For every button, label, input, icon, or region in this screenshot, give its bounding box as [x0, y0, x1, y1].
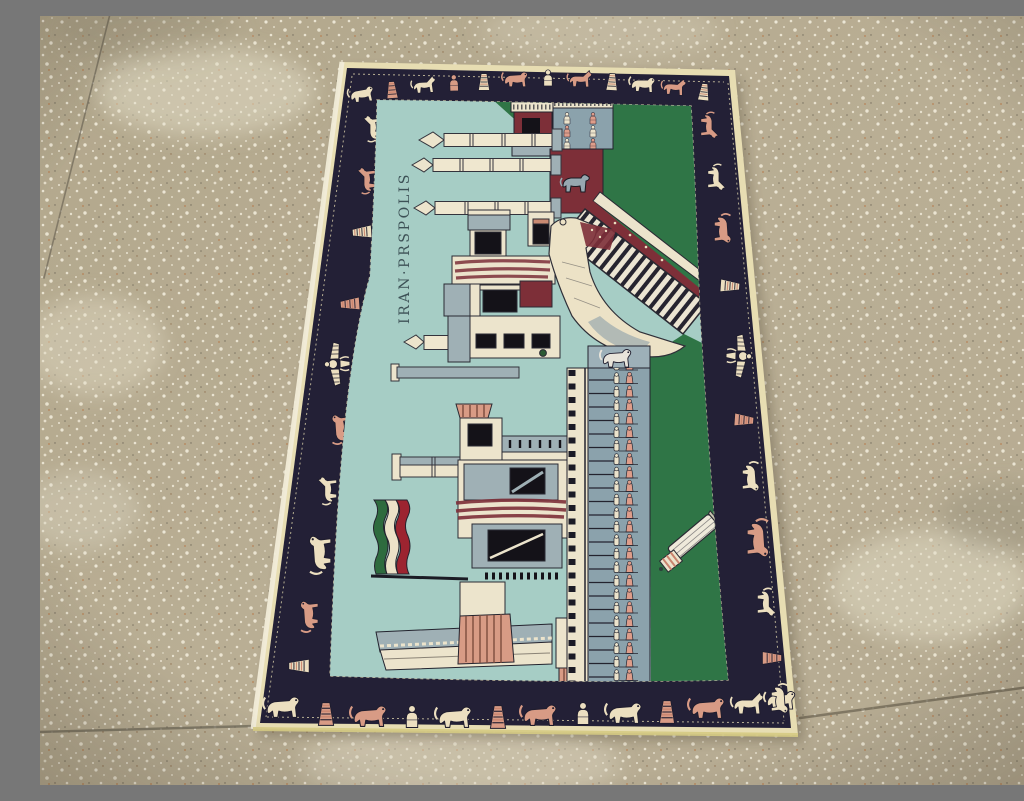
vignette — [40, 16, 1024, 785]
photograph-rug-on-floor: IRAN·PRSPOLIS — [40, 16, 1024, 785]
